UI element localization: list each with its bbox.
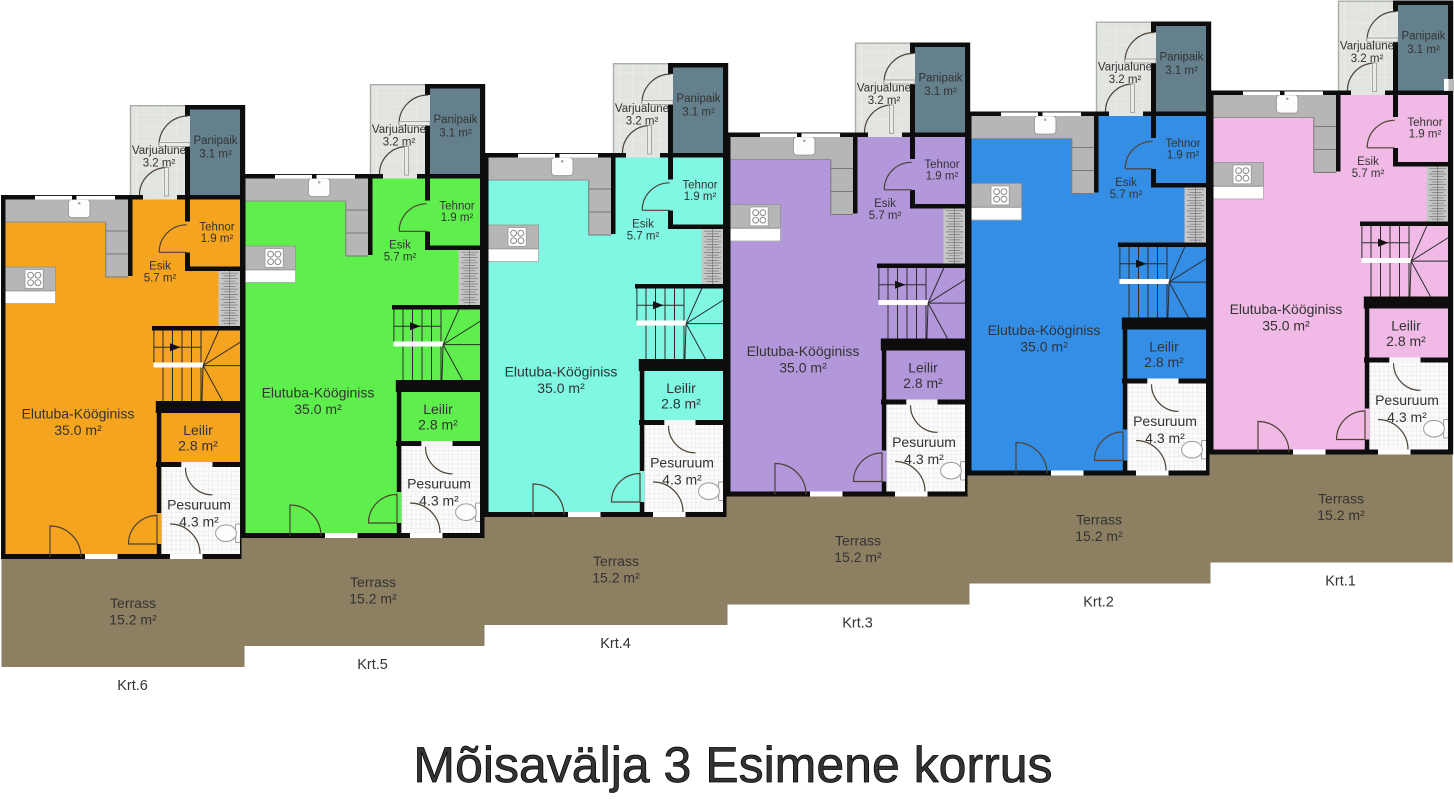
svg-text:Krt.6: Krt.6 bbox=[117, 678, 148, 694]
svg-text:Krt.4: Krt.4 bbox=[600, 636, 631, 652]
svg-text:Krt.1: Krt.1 bbox=[1325, 574, 1356, 590]
svg-text:Krt.2: Krt.2 bbox=[1083, 595, 1114, 611]
svg-text:Mõisavälja 3 Esimene korrus: Mõisavälja 3 Esimene korrus bbox=[413, 737, 1052, 793]
svg-text:Krt.3: Krt.3 bbox=[842, 616, 873, 632]
svg-text:Krt.5: Krt.5 bbox=[357, 657, 388, 673]
